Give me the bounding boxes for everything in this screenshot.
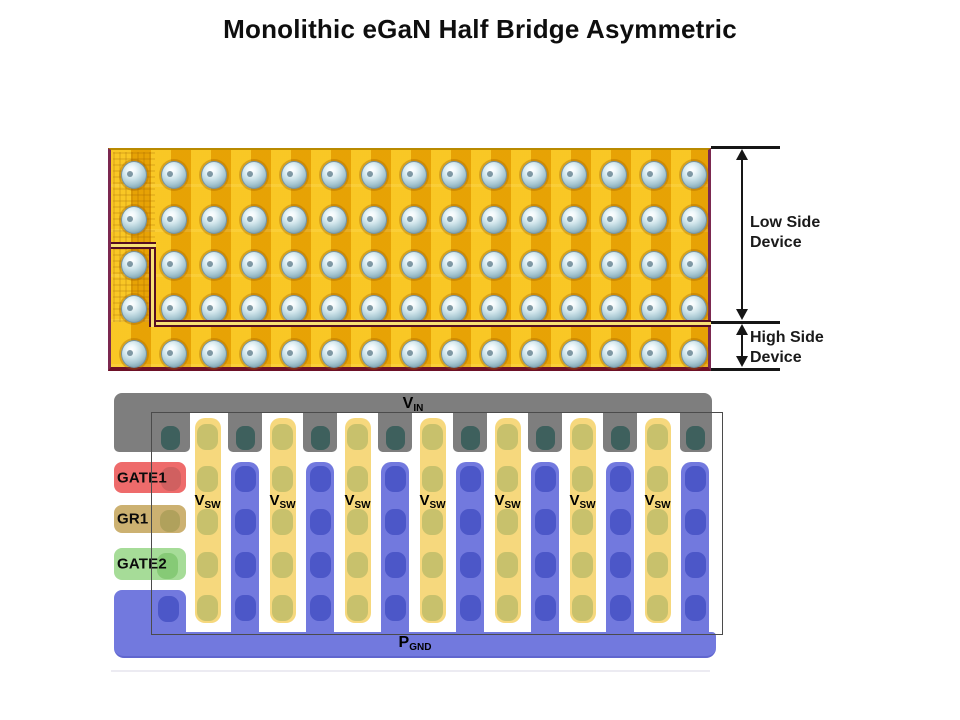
- gnd-pad: [535, 595, 556, 621]
- vsw-label-main: V: [644, 492, 654, 509]
- vsw-label-main: V: [269, 492, 279, 509]
- gnd-pad: [235, 595, 256, 621]
- vsw-label: VSW: [338, 492, 378, 511]
- gnd-pad: [385, 509, 406, 535]
- gnd-pad: [460, 595, 481, 621]
- gate-pad: [160, 510, 180, 532]
- vsw-label-sub: SW: [429, 500, 445, 511]
- vsw-label-main: V: [569, 492, 579, 509]
- vsw-label-sub: SW: [354, 500, 370, 511]
- gnd-pad: [310, 466, 331, 492]
- gnd-pad: [385, 466, 406, 492]
- vsw-bar: VSW: [495, 418, 521, 623]
- gate-box-gate2: GATE2: [114, 548, 186, 580]
- vsw-pad: [497, 509, 518, 535]
- vsw-pad: [272, 552, 293, 578]
- gnd-pad: [460, 552, 481, 578]
- vsw-pad: [497, 424, 518, 450]
- vsw-label: VSW: [563, 492, 603, 511]
- vsw-pad: [347, 595, 368, 621]
- vsw-label: VSW: [263, 492, 303, 511]
- vsw-label-main: V: [419, 492, 429, 509]
- vsw-pad: [272, 595, 293, 621]
- gnd-pad: [460, 509, 481, 535]
- gate-box-gate1: GATE1: [114, 462, 186, 493]
- vin-pad: [386, 426, 405, 450]
- vsw-bar: VSW: [420, 418, 446, 623]
- vsw-label-sub: SW: [279, 500, 295, 511]
- vsw-pad: [347, 552, 368, 578]
- gnd-pad: [535, 509, 556, 535]
- vsw-pad: [572, 595, 593, 621]
- vsw-pad: [197, 509, 218, 535]
- vsw-bar: VSW: [570, 418, 596, 623]
- gnd-pad: [535, 552, 556, 578]
- vin-pad: [611, 426, 630, 450]
- vin-pad: [686, 426, 705, 450]
- vsw-pad: [572, 424, 593, 450]
- gate-label: GR1: [117, 511, 148, 528]
- vsw-pad: [197, 595, 218, 621]
- pgnd-pad: [158, 596, 179, 622]
- vin-pad: [236, 426, 255, 450]
- vsw-label-main: V: [344, 492, 354, 509]
- vsw-pad: [422, 509, 443, 535]
- vsw-pad: [422, 466, 443, 492]
- vsw-pad: [347, 466, 368, 492]
- vsw-pad: [347, 424, 368, 450]
- vsw-label-sub: SW: [579, 500, 595, 511]
- vin-label: VIN: [114, 395, 712, 414]
- gnd-pad: [310, 552, 331, 578]
- vin-pad: [311, 426, 330, 450]
- vsw-label-sub: SW: [204, 500, 220, 511]
- vsw-label: VSW: [638, 492, 678, 511]
- gnd-pad: [385, 595, 406, 621]
- vsw-pad: [272, 466, 293, 492]
- gnd-pad: [685, 466, 706, 492]
- vsw-bar: VSW: [270, 418, 296, 623]
- vsw-label-main: V: [494, 492, 504, 509]
- vsw-pad: [197, 552, 218, 578]
- vsw-bar: VSW: [645, 418, 671, 623]
- gnd-pad: [610, 466, 631, 492]
- gnd-pad: [685, 595, 706, 621]
- vin-pad: [536, 426, 555, 450]
- vsw-label-sub: SW: [654, 500, 670, 511]
- vsw-label: VSW: [413, 492, 453, 511]
- vsw-pad: [197, 424, 218, 450]
- layout-diagram: VIN VSWVSWVSWVSWVSWVSWVSW PGND GATE1GR1G…: [0, 0, 960, 720]
- gnd-pad: [685, 552, 706, 578]
- slide-artifact-line: [111, 670, 710, 672]
- vin-pad: [461, 426, 480, 450]
- vsw-pad: [272, 509, 293, 535]
- vsw-pad: [347, 509, 368, 535]
- vsw-label-sub: SW: [504, 500, 520, 511]
- vsw-pad: [422, 595, 443, 621]
- vsw-pad: [422, 424, 443, 450]
- vin-pad: [161, 426, 180, 450]
- vin-label-main: V: [403, 395, 414, 412]
- gate-label: GATE2: [117, 556, 167, 573]
- gnd-pad: [610, 509, 631, 535]
- gate-label: GATE1: [117, 469, 167, 486]
- vsw-pad: [197, 466, 218, 492]
- pgnd-label-sub: GND: [409, 642, 431, 653]
- vsw-bar: VSW: [195, 418, 221, 623]
- vsw-pad: [647, 595, 668, 621]
- vsw-pad: [422, 552, 443, 578]
- gnd-pad: [385, 552, 406, 578]
- gnd-pad: [310, 509, 331, 535]
- gnd-pad: [235, 509, 256, 535]
- vsw-pad: [572, 466, 593, 492]
- gnd-pad: [460, 466, 481, 492]
- gnd-pad: [235, 466, 256, 492]
- gnd-pad: [535, 466, 556, 492]
- gnd-pad: [310, 595, 331, 621]
- gnd-pad: [610, 552, 631, 578]
- vsw-pad: [497, 466, 518, 492]
- vsw-pad: [647, 424, 668, 450]
- gnd-pad: [685, 509, 706, 535]
- vin-label-sub: IN: [413, 403, 423, 414]
- vsw-label: VSW: [488, 492, 528, 511]
- vsw-pad: [497, 552, 518, 578]
- gnd-pad: [610, 595, 631, 621]
- vsw-pad: [647, 509, 668, 535]
- vsw-pad: [272, 424, 293, 450]
- vsw-label: VSW: [188, 492, 228, 511]
- gnd-pad: [235, 552, 256, 578]
- vsw-pad: [647, 552, 668, 578]
- vsw-pad: [572, 552, 593, 578]
- pgnd-label: PGND: [114, 634, 716, 653]
- vsw-pad: [497, 595, 518, 621]
- pgnd-label-main: P: [399, 634, 410, 651]
- vsw-pad: [572, 509, 593, 535]
- vsw-label-main: V: [194, 492, 204, 509]
- slide: Monolithic eGaN Half Bridge Asymmetric L…: [0, 0, 960, 720]
- vsw-bar: VSW: [345, 418, 371, 623]
- vsw-pad: [647, 466, 668, 492]
- gate-box-gr1: GR1: [114, 505, 186, 533]
